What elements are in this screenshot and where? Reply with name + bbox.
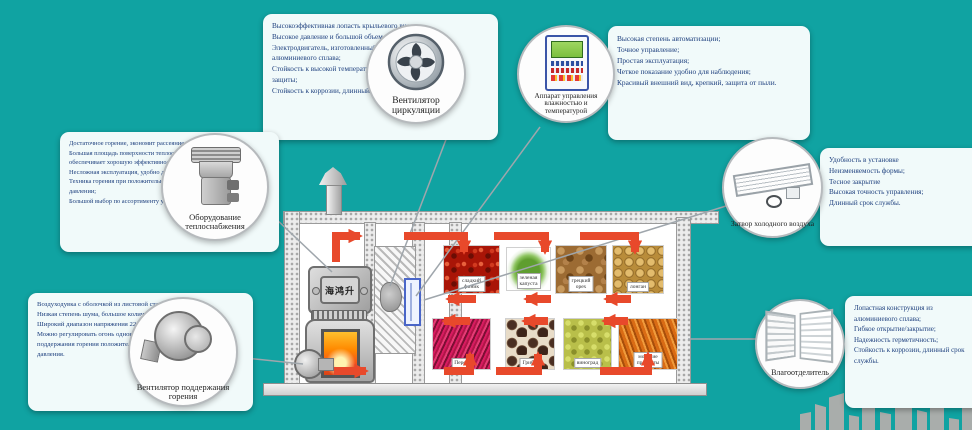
product-label: сладкий финик [458,276,486,292]
product-photo-raisins: виноград [563,318,612,370]
feature-line: Точное управление; [617,44,801,55]
stove-brand-plate: 海鸿升 [320,276,360,304]
humidity-temperature-sensor [404,278,421,326]
feature-box-moisture-separator: Лопастная конструкция из алюминиевого сп… [845,296,972,408]
callout-circulation-fan: Вентилятор циркуляции [366,24,466,124]
control-buttons [551,75,583,81]
chimney-pipe [326,185,342,215]
bolt-icon [360,287,368,295]
chamber-top-wall [283,211,719,224]
exchanger-fan [380,282,402,312]
callout-label: Затвор холодного воздуха [729,220,816,228]
feature-line: Красивый внешний вид, крепкий, защита от… [617,77,801,88]
cold-air-valve-icon [733,163,813,197]
control-buttons [551,61,583,66]
callout-label: Аппарат управления влажностью и температ… [524,93,609,116]
product-photo-mushrooms: Грибы [505,318,555,370]
feature-line: Неизменяемость формы; [829,166,972,177]
decor-bar [800,412,811,430]
product-label: морские продукты [634,352,663,368]
product-label: грецкий орех [569,276,594,292]
callout-moisture-separator: Влагоотделитель [755,299,845,389]
product-photo-walnuts: грецкий орех [555,245,607,294]
callout-combustion-fan: Вентилятор поддержания горения [128,297,238,407]
dryer-infographic: 海鸿升 сладкий финик зеленая капуста грецки… [0,0,972,430]
callout-cold-air-valve: Затвор холодного воздуха [722,137,823,238]
valve-cord [766,195,782,208]
product-photo-jujube: сладкий финик [443,245,500,294]
callout-heating-equipment: Оборудование теплоснабжения [161,133,269,241]
feature-box-cold-air-valve: Удобность в установкеНеизменяемость форм… [820,148,972,246]
decor-bar [949,418,959,430]
moisture-separator-icon [800,309,834,364]
control-screen [551,41,583,58]
chimney-cap [319,167,347,185]
feature-line: Высокая степень автоматизации; [617,33,801,44]
product-label: Перец [451,358,472,368]
product-photo-seafood: морские продукты [618,318,678,370]
callout-label: Оборудование теплоснабжения [168,213,262,231]
bolt-icon [312,287,320,295]
decor-bar [829,393,844,430]
feature-box-control: Высокая степень автоматизации;Точное упр… [608,26,810,140]
furnace-door [227,180,239,190]
heating-equipment-icon [187,147,243,205]
decor-bar [849,415,859,430]
control-apparatus-icon [545,35,589,91]
chamber-right-wall [676,217,691,387]
control-buttons [551,68,583,73]
combustion-fan-icon [184,325,212,353]
callout-label: Вентилятор поддержания горения [135,383,230,401]
feature-line: Удобность в установке [829,155,972,166]
callout-label: Вентилятор циркуляции [373,96,459,117]
decor-bar [880,412,891,430]
product-label: Грибы [519,358,540,368]
valve-actuator [786,187,800,199]
feature-line: Длинный срок службы. [829,198,972,209]
callout-label: Влагоотделитель [761,369,838,378]
circulation-fan-icon [386,32,446,92]
decor-bar [917,410,927,430]
product-photo-longan: лонган [612,245,664,294]
feature-line: Надежность герметичность; [854,335,972,346]
callout-control-apparatus: Аппарат управления влажностью и температ… [517,25,615,123]
feature-line: Лопастная конструкция из алюминиевого сп… [854,303,972,324]
decor-bar [815,404,826,430]
product-photo-greens: зеленая капуста [506,247,551,291]
furnace-door [227,193,239,202]
moisture-separator-icon [765,310,795,361]
feature-line: Тесное закрытие [829,177,972,188]
feature-line: Простая эксплуатация; [617,55,801,66]
feature-line: Высокая точность управления; [829,187,972,198]
stove-blower-pipe [318,358,334,371]
product-label: виноград [574,358,601,368]
feature-line: Четкое показание удобно для наблюдения; [617,66,801,77]
chamber-base-slab [263,383,707,396]
product-label: зеленая капуста [517,273,541,289]
feature-line: Стойкость к коррозии, длинный срок служб… [854,345,972,366]
feature-line: Гибкое открытие/закрытие; [854,324,972,335]
product-photo-chili: Перец [432,318,491,370]
stove-heat-box: 海鸿升 [308,266,372,314]
product-label: лонган [627,282,649,292]
